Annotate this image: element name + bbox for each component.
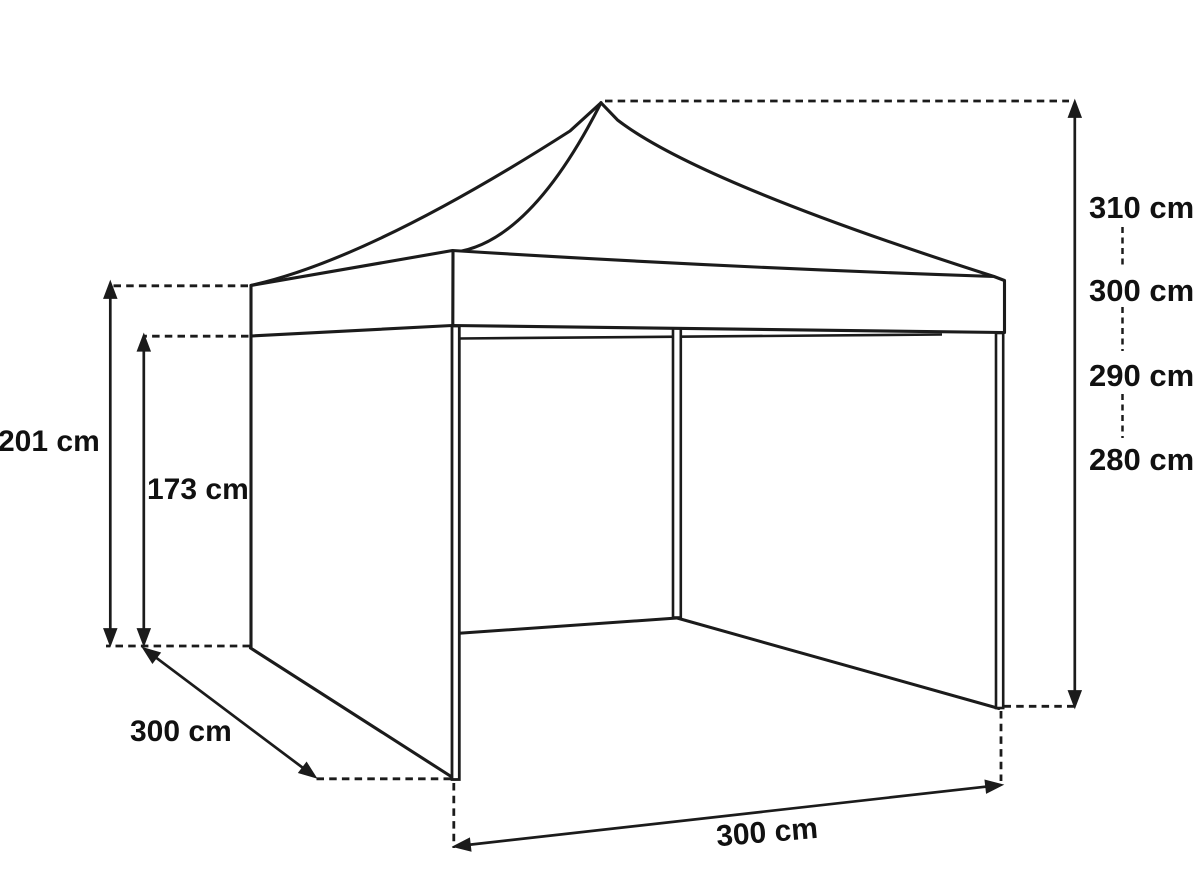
svg-text:201 cm: 201 cm <box>0 425 100 458</box>
svg-text:300 cm: 300 cm <box>1089 273 1194 308</box>
svg-text:310 cm: 310 cm <box>1089 190 1194 225</box>
svg-text:280 cm: 280 cm <box>1089 442 1194 477</box>
svg-text:300 cm: 300 cm <box>130 715 232 748</box>
svg-text:173 cm: 173 cm <box>147 473 249 506</box>
svg-text:290 cm: 290 cm <box>1089 358 1194 393</box>
